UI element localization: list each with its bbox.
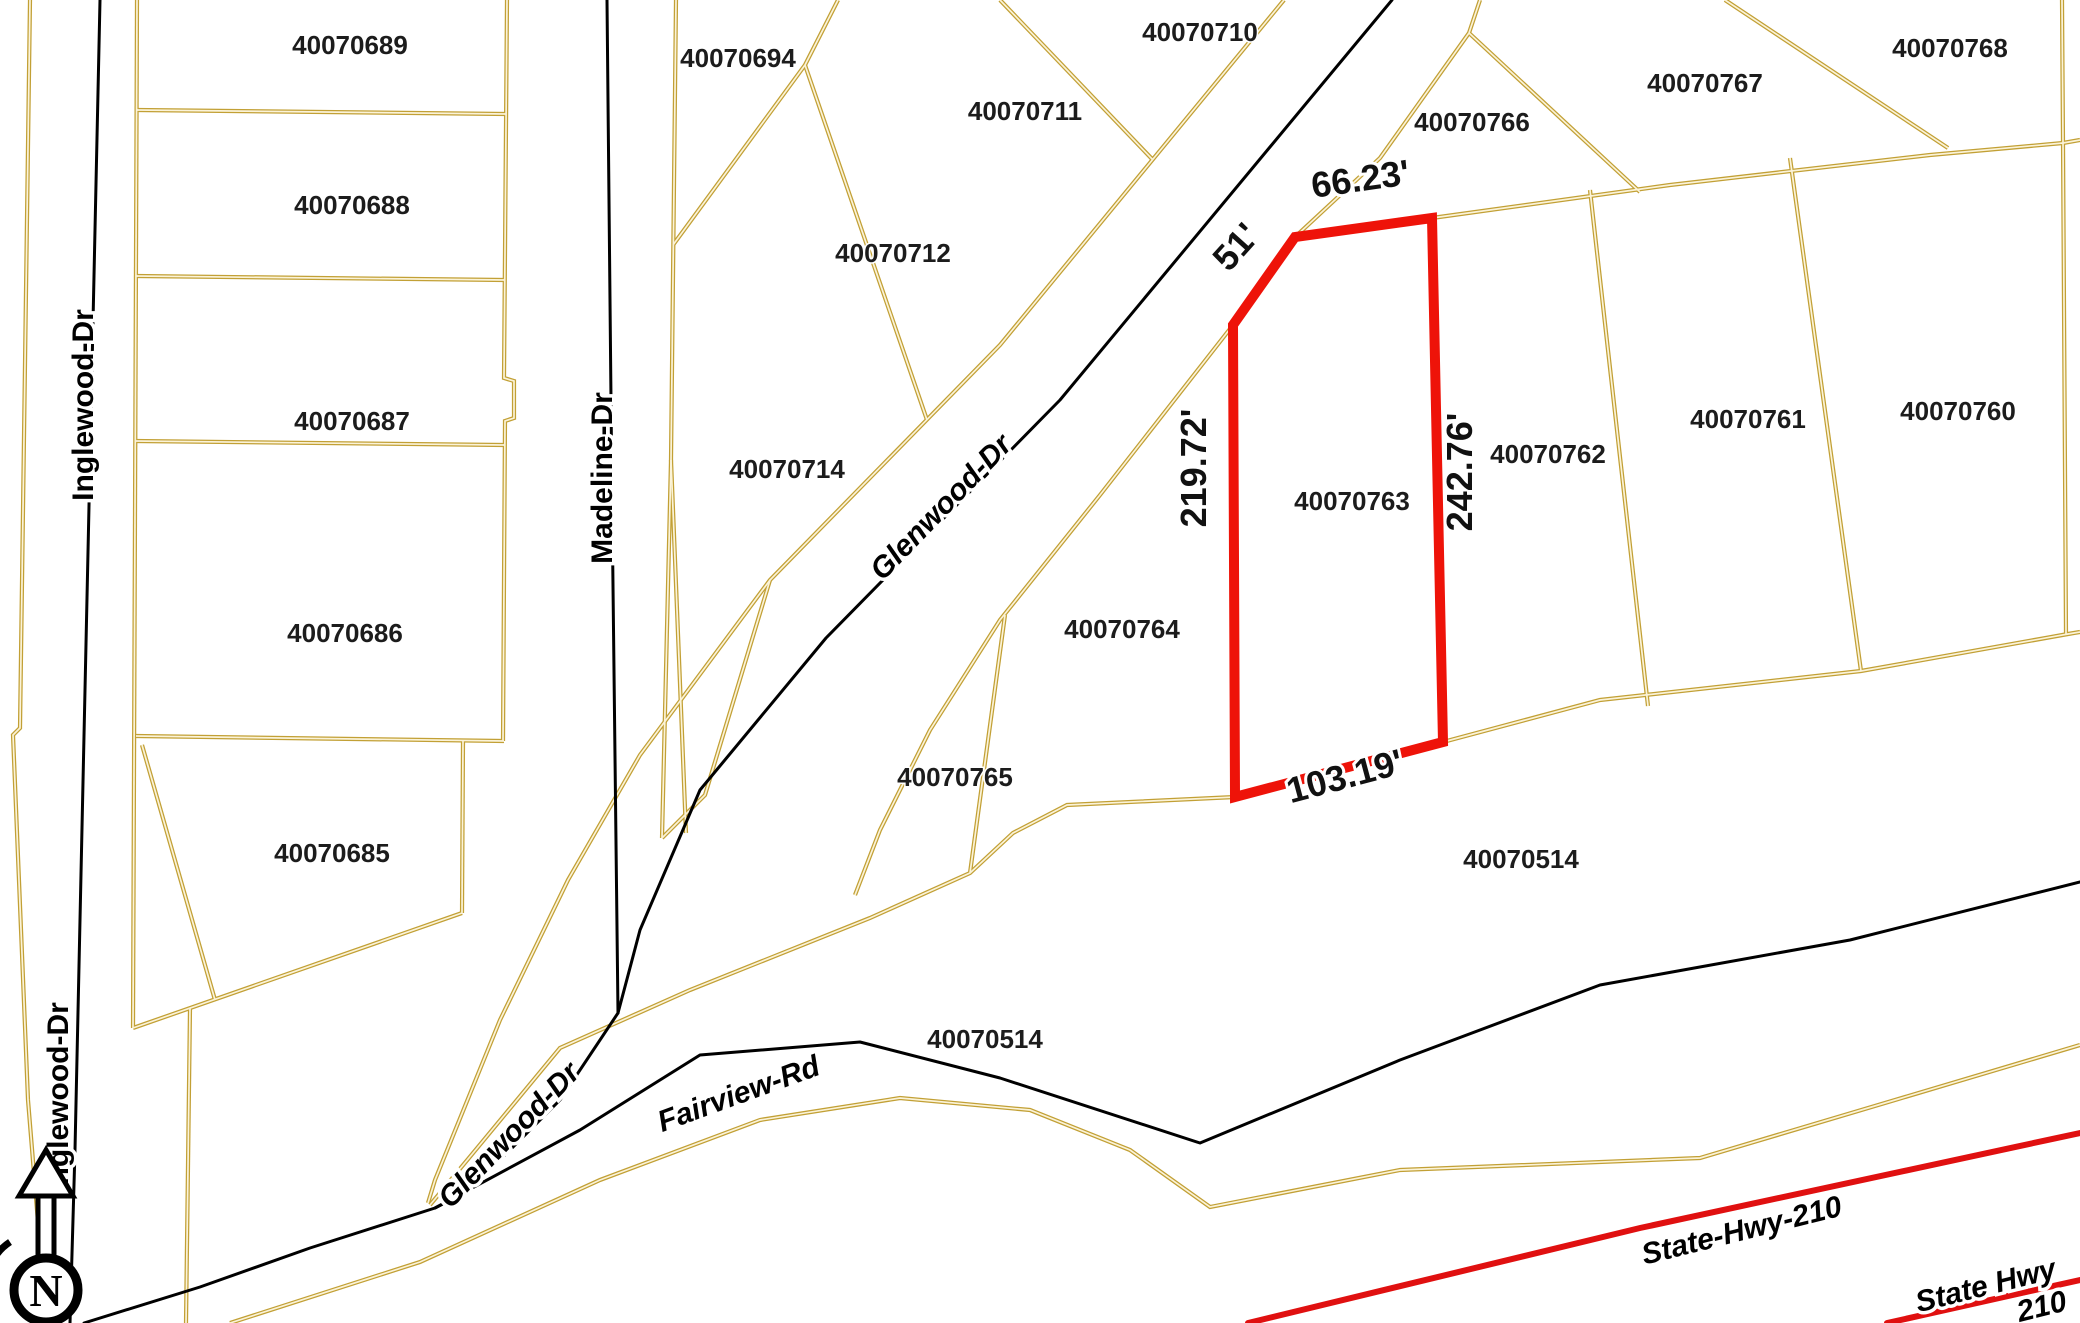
parcel-boundary-line [673,0,838,245]
dimension-label: 242.76' [1439,413,1480,532]
parcel-label-40070688: 40070688 [294,190,410,220]
dimension-label: 66.23' [1309,151,1412,205]
street-label: Fairview-Rd [653,1049,825,1138]
north-arrow-letter: N [29,1265,62,1316]
parcel-boundary-line-core [1443,632,2080,742]
parcel-label-40070764: 40070764 [1064,614,1180,644]
parcel-label-40070710: 40070710 [1142,17,1258,47]
parcel-boundary-line-core [142,745,215,1000]
street-label: Inglewood-Dr [67,309,100,501]
parcel-label-40070694: 40070694 [680,43,796,73]
parcel-label-40070767: 40070767 [1647,68,1763,98]
parcel-label-40070761: 40070761 [1690,404,1806,434]
parcel-boundary-line [230,1045,2080,1323]
parcel-label-40070714: 40070714 [729,454,845,484]
parcel-boundary-line-core [1000,0,1153,160]
parcel-label-40070689: 40070689 [292,30,408,60]
parcel-boundary-line [1432,140,2080,218]
labels-layer: 4007068940070688400706874007068640070685… [42,17,2070,1323]
parcel-label-40070686: 40070686 [287,618,403,648]
parcel-boundary-line-core [428,0,1284,1203]
parcel-boundary-line-core [230,1045,2080,1323]
parcel-boundary-line-core [133,913,462,1028]
parcel-boundary-line [428,0,1284,1203]
dimension-label: 103.19' [1282,741,1407,811]
parcel-label-40070712: 40070712 [835,238,951,268]
street-label: Madeline-Dr [586,392,619,564]
parcel-label-40070711: 40070711 [968,96,1082,126]
road-fairview-rd [84,882,2080,1323]
parcel-label-40070685: 40070685 [274,838,390,868]
parcel-boundary-line-core [462,741,463,913]
parcel-label-40070766: 40070766 [1414,107,1530,137]
parcel-map-canvas: 4007068940070688400706874007068640070685… [0,0,2080,1323]
parcel-map: 4007068940070688400706874007068640070685… [0,0,2080,1323]
dimension-label: 51' [1204,215,1267,279]
parcel-label-40070768: 40070768 [1892,33,2008,63]
parcel-label-40070514: 40070514 [927,1024,1043,1054]
road-glenwood-dr [435,0,1392,1208]
parcel-label-40070760: 40070760 [1900,396,2016,426]
parcel-label-40070687: 40070687 [294,406,410,436]
dimension-label: 219.72' [1173,409,1214,528]
street-label: State-Hwy-210 [1638,1190,1845,1272]
parcel-boundary-line-core [970,615,1005,873]
street-label: Glenwood-Dr [864,427,1020,587]
parcel-boundary-line-core [671,460,686,833]
parcel-label-40070765: 40070765 [897,762,1013,792]
parcel-label-40070514: 40070514 [1463,844,1579,874]
parcel-label-40070762: 40070762 [1490,439,1606,469]
parcel-label-40070763: 40070763 [1294,486,1410,516]
